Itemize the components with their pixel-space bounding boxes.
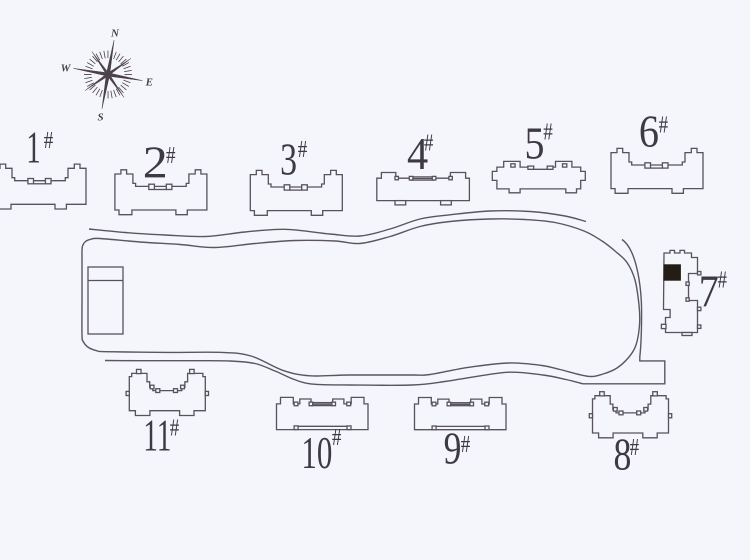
svg-text:#: # [44,128,54,154]
svg-text:#: # [543,120,553,146]
svg-text:#: # [332,425,342,451]
svg-text:3: 3 [280,134,297,184]
svg-text:#: # [630,435,640,461]
svg-text:2: 2 [143,138,168,188]
svg-text:#: # [166,143,176,169]
svg-text:5: 5 [525,119,545,169]
svg-text:#: # [718,268,728,294]
svg-text:S: S [98,111,104,123]
svg-text:6: 6 [639,107,659,157]
svg-text:W: W [61,62,72,74]
svg-text:#: # [298,137,308,163]
svg-text:9: 9 [444,424,462,474]
svg-text:#: # [659,112,669,138]
svg-text:E: E [145,77,153,89]
svg-text:1: 1 [26,122,41,172]
svg-text:#: # [170,416,180,442]
svg-text:11: 11 [143,410,171,460]
svg-text:10: 10 [301,428,332,478]
svg-text:#: # [424,131,434,157]
svg-text:#: # [461,432,471,458]
svg-text:N: N [110,28,120,40]
svg-text:7: 7 [699,266,719,316]
